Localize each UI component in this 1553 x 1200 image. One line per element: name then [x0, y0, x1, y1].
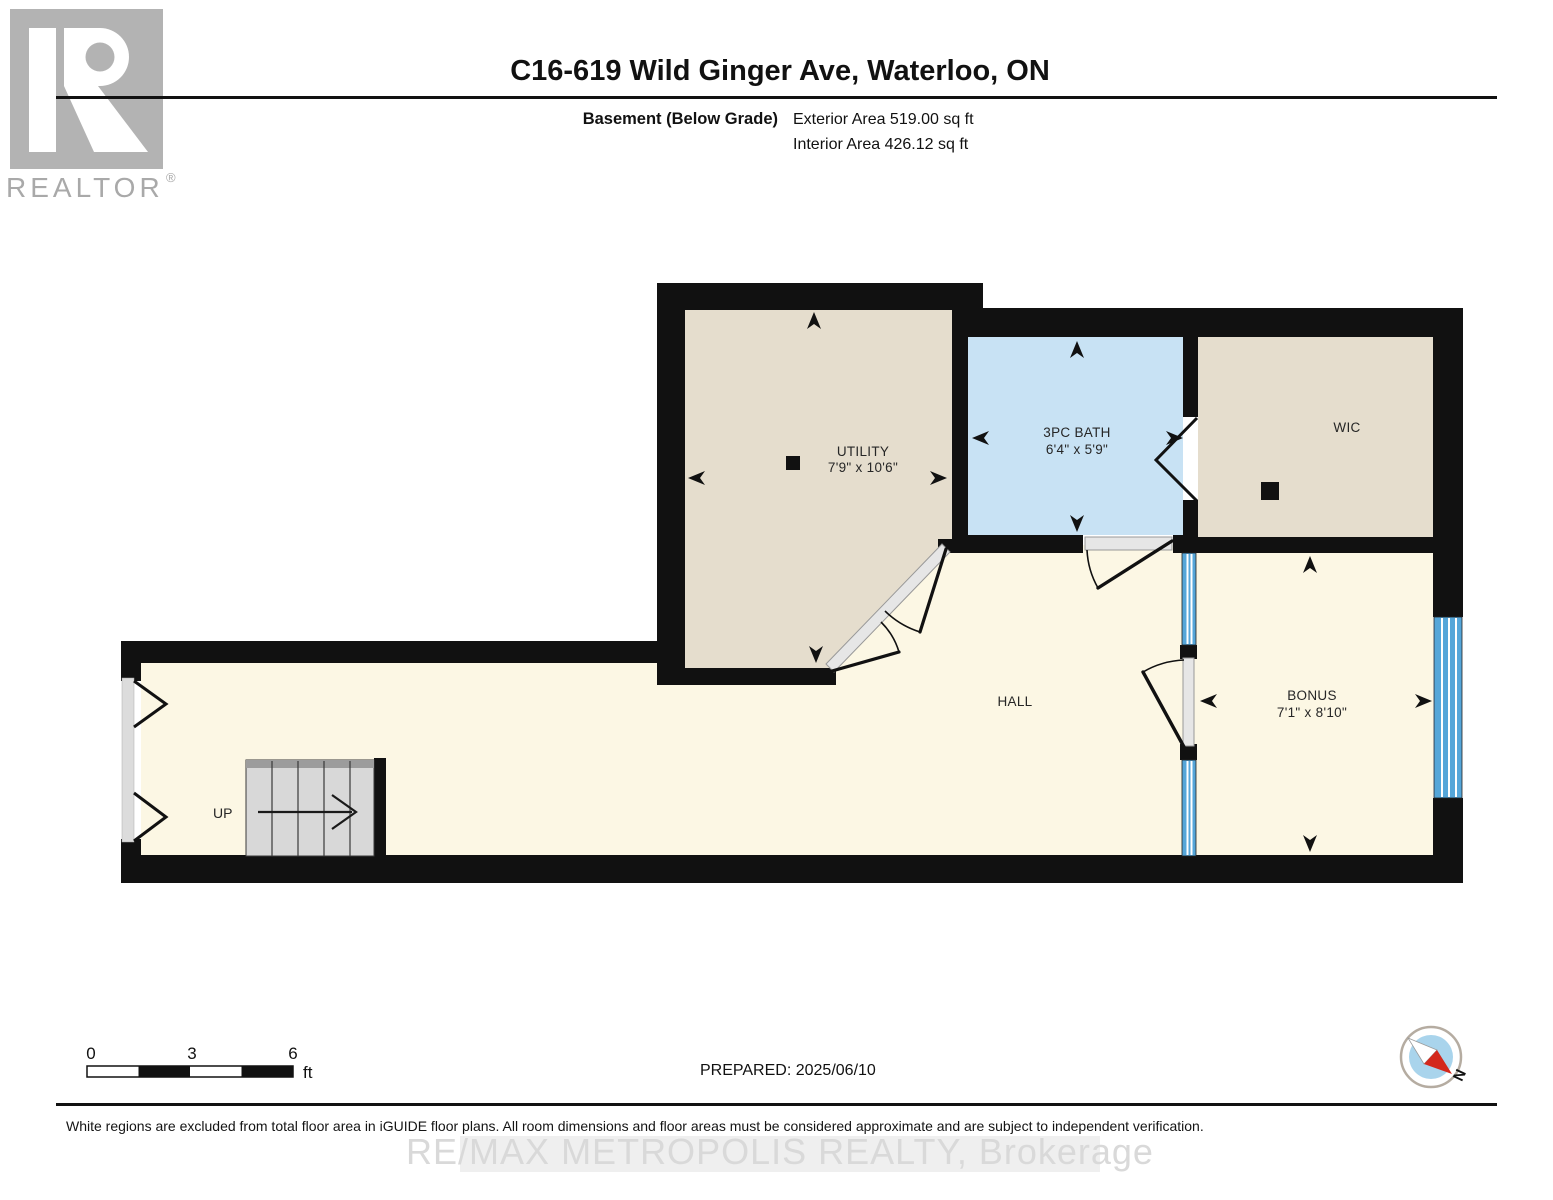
- prepared-date: PREPARED: 2025/06/10: [700, 1062, 876, 1079]
- compass-icon: N: [1401, 1027, 1469, 1087]
- realtor-logo: REALTOR ®: [6, 9, 176, 203]
- bonus-dims: 7'1" x 8'10": [1277, 705, 1347, 720]
- left-wall-opening: [122, 678, 134, 842]
- scale-unit: ft: [303, 1063, 313, 1082]
- wic-label: WIC: [1333, 420, 1360, 435]
- floor-plan-canvas: REALTOR ® C16-619 Wild Ginger Ave, Water…: [0, 0, 1553, 1200]
- glazed-partition-lower: [1182, 760, 1196, 856]
- scale-bar: 0 3 6 ft: [86, 1044, 312, 1082]
- stairs-body: [246, 760, 374, 856]
- exterior-area: Exterior Area 519.00 sq ft: [793, 111, 974, 128]
- header: C16-619 Wild Ginger Ave, Waterloo, ON Ba…: [56, 55, 1497, 153]
- wic-post-icon: [1261, 482, 1279, 500]
- interior-area: Interior Area 426.12 sq ft: [793, 136, 969, 153]
- floor-label: Basement (Below Grade): [583, 110, 778, 128]
- hall-label: HALL: [998, 694, 1033, 709]
- utility-post-icon: [786, 456, 800, 470]
- utility-dims: 7'9" x 10'6": [828, 460, 898, 475]
- utility-label: UTILITY: [837, 444, 889, 459]
- bonus-label: BONUS: [1287, 688, 1337, 703]
- brokerage-watermark: RE/MAX METROPOLIS REALTY, Brokerage: [406, 1131, 1154, 1172]
- footer: White regions are excluded from total fl…: [56, 1103, 1497, 1172]
- registered-mark: ®: [166, 170, 176, 185]
- scale-tick-3: 3: [187, 1044, 196, 1063]
- up-label: UP: [213, 805, 232, 821]
- realtor-wordmark: REALTOR: [6, 172, 164, 203]
- stairs-top-edge: [246, 760, 374, 768]
- page-title: C16-619 Wild Ginger Ave, Waterloo, ON: [510, 55, 1050, 87]
- header-rule: [56, 96, 1497, 99]
- footer-rule: [56, 1103, 1497, 1106]
- glazed-partition-upper: [1182, 553, 1196, 645]
- bath-dims: 6'4" x 5'9": [1046, 442, 1108, 457]
- scale-tick-0: 0: [86, 1044, 95, 1063]
- scale-tick-6: 6: [288, 1044, 297, 1063]
- wic-floor: [1198, 337, 1433, 537]
- bonus-door-slab: [1183, 658, 1194, 746]
- bath-label: 3PC BATH: [1043, 425, 1110, 440]
- floor-plan-page: REALTOR ® C16-619 Wild Ginger Ave, Water…: [0, 0, 1553, 1200]
